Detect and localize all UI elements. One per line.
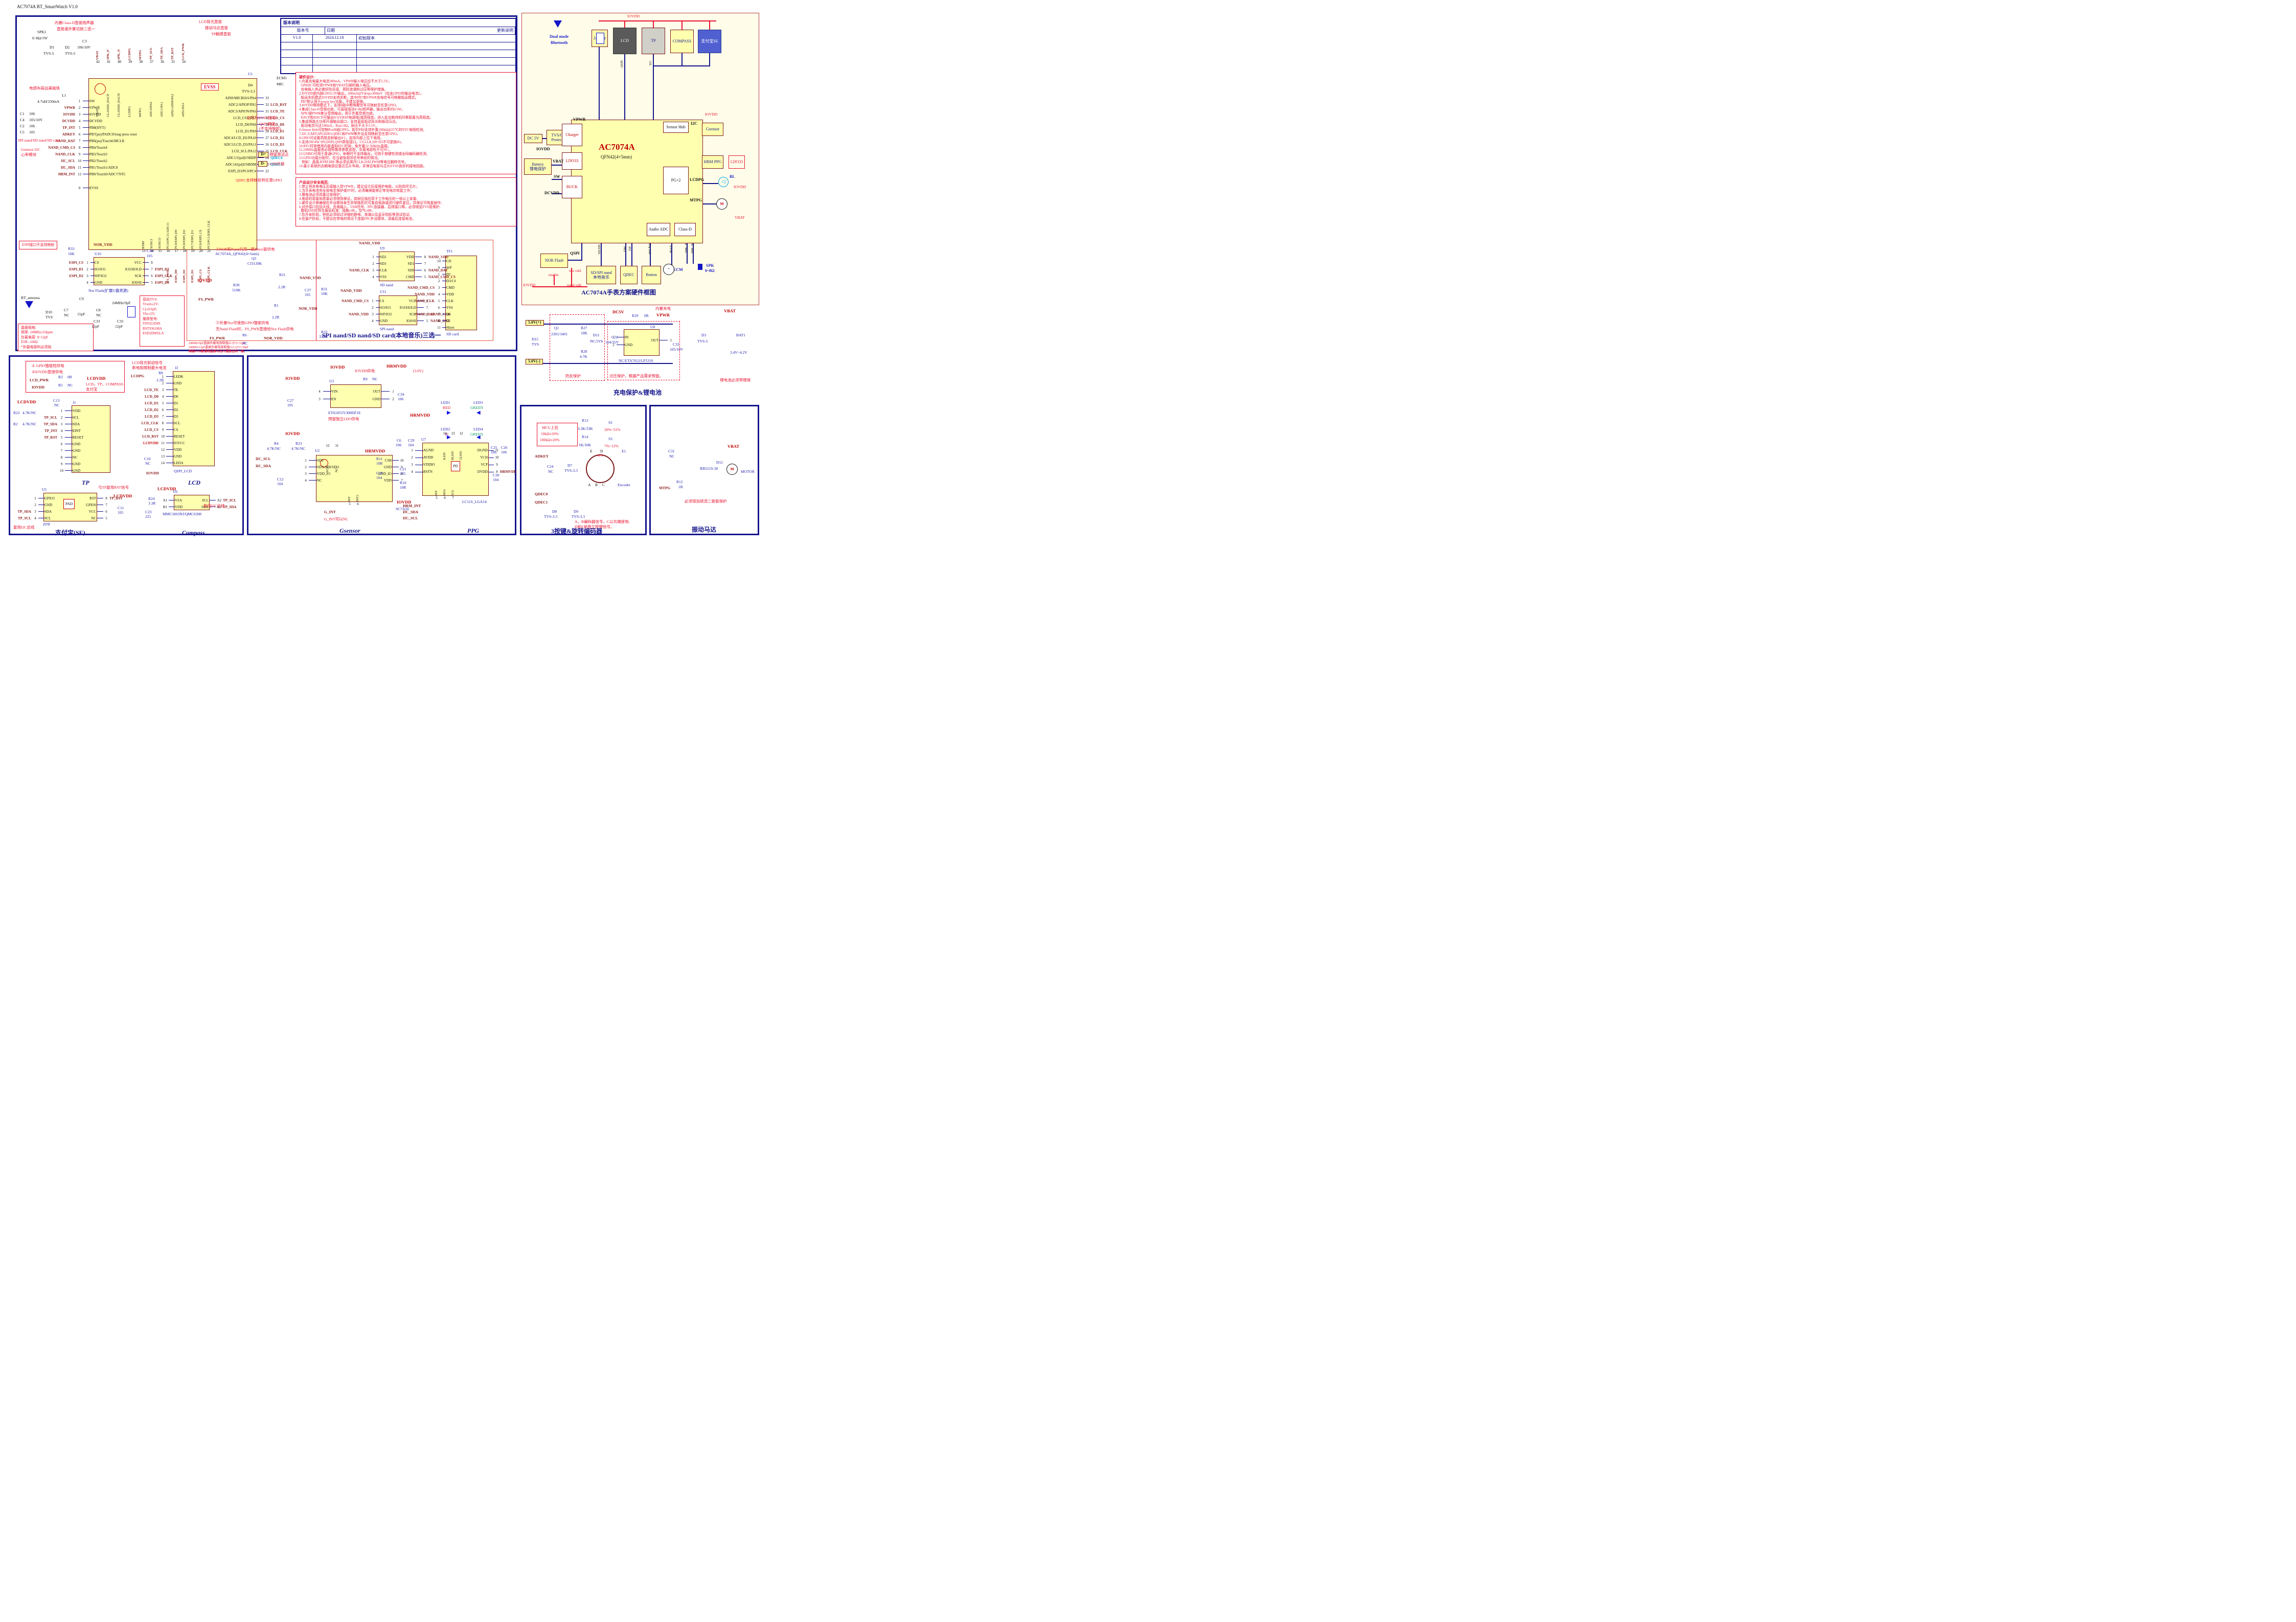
label: C33 [94,319,100,324]
pin: 8D1 [401,317,475,324]
label: TVS-3.3 [564,469,578,473]
pin: NAND_DAT7PB6(pu)/Touch6/MCLR [39,138,193,144]
label: SPK_N [691,243,694,254]
pin: 1D2 [401,271,475,278]
table-row: V1.02024.12.18初始版本 [281,35,515,42]
pin: VPWR2VPWR [39,104,193,111]
label: HRM_INT [403,504,421,508]
note-line: 频率: 24MHz±10ppm [21,330,90,335]
notes-title: 硬件设计: [299,75,513,80]
label: Gsensor [339,528,360,534]
pin: ESPI_D05IO0/SI [96,279,177,286]
label: 106/10V [77,45,90,50]
label: NC [145,462,150,466]
label: 104/35V [605,340,619,345]
tvs-note-box: 双向TVS:Vrwm≥2V;Cj≤0.6pF;Vbr≤5V;推荐型号:ST032… [140,295,185,347]
reverse-protection-box [550,314,605,381]
label: MIC [277,82,284,86]
label: ▶ [447,410,451,416]
label: IIC_SDA [256,464,271,468]
label: 104 [376,476,382,480]
pin: 13GND [128,453,220,460]
block-box: Button [642,266,661,284]
label: ① GPIO强驱档供电 [32,364,64,368]
label: D11 [593,333,600,337]
wire [599,20,716,21]
note-line: APIO是PWM差分音频输出，用于外置音频功放。 [299,112,513,116]
label: 5.0V(-) [526,359,543,364]
label: NAND_VDD [359,241,380,245]
label: U5 [42,488,47,492]
note-line: 14.最小系统的去耦电容应靠近芯片布局，并保证电容与芯片EVSS良好的接地回路。 [299,165,513,169]
bt-antenna-icon [25,301,33,308]
label: I2C [691,122,697,126]
label: 内置充电 [655,307,671,311]
label: NC [242,341,247,346]
label: 104 [277,482,283,486]
label: 3按键&旋转编码器 [551,528,602,535]
label: 105 [118,511,123,515]
label: IOVDD [523,283,535,287]
pin: PC5/PC1/ESPI_CLK21ESPI_CLK [205,211,213,283]
label: VPWR [573,118,585,122]
label: SPK [706,264,714,268]
version-table: 版本说明 版本号日期更新说明 V1.02024.12.18初始版本 [280,18,516,74]
label: IOVDD [705,112,717,117]
pin: 12VDD [128,446,220,453]
label: nor vdd [569,269,581,273]
label: NC/ETA7012/LP5310 [619,359,653,363]
label: AC7074A手表方案硬件框图 [581,289,656,296]
label: ②IOVDD直接供电 [32,370,63,374]
label: LCDPG [690,178,704,182]
label: IIC_SDA [403,510,418,514]
label: TVS [532,342,539,347]
label: VBAT [724,309,736,314]
pin: LCD_RST10RESET [128,433,220,440]
label: R28 [581,350,587,354]
label: NC/5V6 [590,339,603,344]
label: C4 [20,118,25,122]
pin: INT26 [354,487,362,508]
label: 15pF [77,312,85,316]
version-table-rows: V1.02024.12.18初始版本 [281,35,515,73]
label: PAD [63,499,75,509]
label: 24MHz/12pF晶振负载电容取值(12-3)*2=18pF [189,346,248,350]
label: M [726,464,738,475]
label: D [600,449,603,453]
label: LCD，TP，COMPASS [86,382,123,386]
label: CJ3139K [247,262,262,266]
label: 10K [68,252,75,256]
pin: PC7/ESPI_D119ESPI_D1 [189,211,197,283]
block-box: TP [642,28,665,54]
block-box: Sensor Hub [663,122,689,133]
wire [653,20,654,28]
pin: LCD_D04D0 [128,393,220,400]
wire [653,65,710,66]
label: A [588,483,590,487]
label: R4 [274,442,279,446]
table-row [281,42,515,50]
pin: NAND_CLK9PB3/Touch3 [39,151,193,157]
label: 106 [396,443,401,447]
label: LED3 [473,401,483,405]
block-box: Audio ADC [647,223,670,236]
label: R6 [242,333,247,337]
label: 1R [678,485,683,489]
label: LCD背光直驱 [199,20,222,24]
label: D4 [248,83,253,87]
wire [653,54,654,120]
label: AC7074A [599,142,635,152]
product-safety-notes: 产品设计安全规范: 1.禁止将充电电压反接输入到VPWR，建议设计反接保护电路，… [295,177,516,226]
block-box: LDO33 [729,155,745,169]
version-table-header: 版本号日期更新说明 [281,27,515,35]
note-line: 3.锂电池必须具备过放保护； [299,193,513,197]
label: 105 [287,403,293,407]
page-title: AC7074A BT_SmartWatch V1.0 [17,4,78,9]
label: D1 [50,45,54,50]
label: R23 [295,442,302,446]
label: QDEC支持映射到任意GPIO [236,178,282,182]
label: 防反保护 [565,374,581,378]
label: TF1 [446,249,453,254]
u1-left-pins: 1SWVPWR2VPWRIOVDD3IOVDDDCVDD4DCVDDTP_INT… [39,98,193,191]
wire [624,54,625,120]
label: NAND_VDD [340,289,362,293]
label: 两层PCB板请将晶振与芯片摆放在同一层。 [189,350,247,354]
label: 锂电池必须带锂保 [720,378,751,382]
charging-section: 1IN2GND 3OUT 5.0V(+)5.0V(-)D15TVS防反保护Q12… [521,307,759,404]
label: HRMVDD [410,413,430,418]
label: U3 [329,379,334,383]
note-line: 6.Sensor Hub可控制PortB组GPIO，其中PB0支持外置100kΩ… [299,128,513,132]
label: ◀ [476,410,481,416]
label: 2301/3401 [551,332,567,336]
pin: IOVDD3IOVDD [39,111,193,118]
label: MCU上拉 [542,426,558,430]
pin: SDA6 [441,481,449,502]
keys-encoder-section: MCU上拉10kΩ±20%100kΩ±20%R133.3K/33KS220%~3… [520,405,647,535]
label: 串电阻限制最大电流 [132,366,167,370]
label: NC [372,377,377,381]
wire [681,20,683,30]
note-line: 8.在量产阶段，不建议在带电的情况下连接FPC外设模块，请最后连接电池。 [299,217,513,221]
pin: 2GND [128,380,220,386]
label: 106 [491,450,496,454]
note-line: Vbr≤5V; [143,312,181,316]
pin: 5NC [47,515,130,521]
label: SD card [446,332,459,336]
label: IOVDD [197,278,212,283]
pin: LCD_D227ADC4/LCD_D2/PA10 [201,134,293,141]
note-line: 5.集成两路大功率开漏输出接口，支持直接驱动背光和振动马达。 [299,120,513,124]
label: PD [451,461,460,471]
pin: TP_RST5RESET [30,434,117,441]
label: LC11S_LGA14 [462,500,487,504]
pin: 10VCH [425,454,517,461]
note-line: 8.GPIO可设置高阻态和输出0/1，支持内部上拉下电阻。 [299,136,513,141]
label: 105 [147,254,152,258]
label: LED2 [441,427,450,431]
label: TVS-3.3 [572,515,585,519]
label: C22 [611,335,618,339]
label: D15 [532,337,538,341]
note-line: 负载电容: 8~12pF [21,335,90,340]
label: G_INT [324,510,336,514]
pin: 9GND [30,461,117,467]
label: LCD [188,479,200,486]
label: MTPG [659,486,671,490]
label: 510K [232,288,241,292]
label: RB521S-30 [700,467,718,471]
label: Nor Flash(扩展U盘资源) [88,289,128,293]
label: 0R [67,375,72,379]
label: R2 [13,422,18,426]
label: IOVDD [146,471,159,475]
label: TVS-3.3 [242,89,255,94]
pin: 14LEDA [128,460,220,466]
label: 105/10V [670,348,683,352]
pin: 22ESPI_D3/PC0/PC4 [201,168,293,174]
label: TP触摸直驱 [211,32,231,36]
note-line: 推荐型号: [143,317,181,322]
pin: TP_SCLA2SCL [177,497,243,504]
label: 充电保护&锂电池 [613,390,662,396]
crystal-icon [127,306,135,317]
pin: TP_SDA3SDA [30,421,117,427]
pin: LCD_CS9CS [128,426,220,433]
pin: 9VCP [425,461,517,468]
j1-pins: 1VDDTP_SCL2SCLTP_SDA3SDATP_INT4EINTTP_RS… [30,407,117,474]
note-line: *负载电容料必须贴 [21,345,90,350]
label: 106 [29,112,35,116]
label: 无Nand Flash时，FS_PWR直接给Nor Flash供电 [216,327,294,331]
header-cell: 日期 [325,27,495,34]
label: D3 [701,333,706,337]
label: E [590,449,593,453]
tp-lcd-section: ① GPIO强驱档供电②IOVDD直接供电LCD_PWRR30RLCDVDDLC… [9,355,244,535]
note-line: 5.硬件设计需确保在外设模块发生异常跑死时可重启电源或进行硬件复位，并保证可恢复… [299,201,513,205]
wire [542,138,547,139]
label: 直驱或外置功放二选一 [57,27,95,31]
label: LCD_PWR [30,378,49,382]
label: 4.7K/NC [267,447,281,451]
u3-right-pins: 1OUT2GND [333,387,417,403]
pin: INT5 [433,481,441,502]
block-box: LDO33 [562,152,582,170]
gsensor-ppg-section: IOVDDIOVDDIOVDD供电HRMVDD(3.0V)R9NCU3C2710… [247,355,516,535]
label: Gsensor I2C [21,148,40,152]
label: C8 [96,308,101,312]
label: LCDPG [131,374,144,378]
wire [709,53,710,66]
label: NOR_VDD [264,336,283,340]
label: VBAT [728,444,739,449]
main-sheet: 内置Class-D直驱扬声器直驱或外置功放二选一SPK16~8Ω/1WD1TVS… [15,15,517,351]
label: E1 [622,449,626,453]
label: QDEC1 [535,500,548,505]
label: U6 [173,490,177,494]
pin: 2GND [333,395,417,403]
label: MTPG [690,198,702,203]
label: 106 [29,124,35,128]
block-box: BUCK [562,176,582,198]
label: Q3 [252,257,256,261]
label: G_INT可以NC [324,517,348,521]
label: C35 [117,319,124,324]
label: IIC_SCL [403,516,418,520]
pin: 6GND [30,441,117,447]
label: 10R [376,462,383,466]
pin: LCD_RST32ADC2/APIOP/PA5 [201,101,293,108]
label: 12pF [92,325,99,329]
pin: 8VCC [96,259,177,266]
block-box: 支付宝SE [698,30,721,53]
note-line: 双向TVS: [143,298,181,302]
label: 10K [581,331,587,335]
pin: TP_INT5PB8(HVT) [39,124,193,131]
u7-bottom-pins: INT5SDA6SCL7 [433,481,459,502]
label: QSPI_LCD [174,469,192,473]
tf1-left-pins: 10CD9WP1D22D3/CSNAND_CMD_CS3CMDNAND_VDD4… [401,258,475,331]
label: L1 [62,94,66,98]
label: DC5V [612,310,624,315]
label: BIAS [669,245,673,253]
label: TP [82,479,89,486]
label: 振动马达 [692,527,716,533]
label: 106 [501,450,507,454]
label: 20%~31% [604,428,621,432]
label: TVS-3.3 [544,515,557,519]
wire [568,260,582,261]
label: LCDVDD [17,400,36,405]
label: ①NOR和Nand共用一路Pmos管供电 [216,247,275,252]
label: D9 [574,510,578,514]
label: U7 [421,438,426,442]
label: ▶ [447,435,451,440]
label: 10K [321,292,328,296]
label: EVSS [201,83,219,90]
label: R9 [363,377,368,381]
note-line: 例如：晶振,BTRF,MIC等必须远离开CLK,DAT,PWM等电压翻转信号。 [299,161,513,165]
label: C38 [147,249,153,253]
label: D7 [567,464,572,468]
label: 225 [145,515,151,519]
label: 24MHz/9pF晶振负载电容取值(9-3)*2=12pF [189,342,245,346]
label: D- [258,161,267,167]
label: D10 [46,310,52,314]
label: R29 [632,314,639,318]
label: <2% [596,453,603,458]
wire [624,20,625,28]
label: 7%~12% [604,444,619,448]
label: BL [730,175,735,179]
label: 复用I2C总线 [13,526,34,530]
label: C31 [668,449,675,453]
version-table-title: 版本说明 [281,19,515,27]
label: IIC_SCL [256,457,271,461]
note-line: ESR: ≤60Ω [21,340,90,345]
pin: NAND_CMD_CS8PB4/Touch4 [39,144,193,151]
label: 5.0V(+) [526,320,544,326]
pin: HRMVDD8DVDD [425,468,517,475]
table-row [281,58,515,65]
note-line: Cj≤0.6pF; [143,307,181,312]
pin: 1OUT [333,387,417,395]
label: IOVDD [734,185,746,189]
label: 24MHz/9pF [112,301,131,305]
rotary-encoder-icon [586,454,615,483]
label: SPK1 [37,30,47,34]
label: D2 [65,45,70,50]
pin: 10CD [401,258,475,264]
note-line: 7.I2C,UART,SPI,SDIO,QDEC和PWM等外设支持映射至任意GP… [299,132,513,136]
note-line: ST0321D4S [143,322,181,326]
pin: PC8/ESPI_D218ESPI_D2 [180,211,189,283]
label: C3 [82,39,87,43]
pin: LCD_D15D1 [128,400,220,406]
pin: 11Sheet [401,324,475,331]
note-line: 9.支持3W/4W SPI,DSPI,QSPI屏驱接口。CS,CLK,D0~D3… [299,141,513,145]
label: ETA5055V300DF1E [328,411,361,415]
label: R12 [676,480,683,484]
pin: 10GND [30,467,117,474]
pin: 0EVSS [39,185,193,191]
label: HRMVDD [387,364,406,369]
label: DM [623,246,627,252]
label: 2.2R [156,378,164,382]
label: BT_antenna [21,296,40,300]
label: Bluetooth [551,41,567,45]
label: nand vdd [567,283,581,287]
pin: ESPI_CLK6SCK [96,272,177,279]
label: 6~8Ω [705,269,715,273]
label: C [602,483,605,487]
label: DP [628,246,632,250]
label: enable [549,273,559,277]
label: 104 [493,478,498,482]
label: TVS [46,315,53,319]
label: LCD背光驱动信号 [132,361,163,365]
label: 10R [400,486,406,490]
label: C24 [547,465,554,469]
note-line: 充电输入务必做好防反接、预防浪涌和过压等保护措施。 [299,88,513,92]
hardware-design-notes: 硬件设计: 1.内置充电最大电流300mA，VPWR输入电压应不大于5.5V。 … [295,72,516,174]
pin: NAND_CMD_CS3CMD [401,284,475,291]
label: (不支持映射) [259,127,281,131]
pin: 1SW [39,98,193,104]
note-line: 1.内置充电最大电流300mA，VPWR输入电压应不大于5.5V。 [299,80,513,84]
label: ZFB [43,522,50,527]
label: SPI nand/SD nand/SD card [18,139,60,143]
label: C5 [20,130,25,134]
label: QSPI [570,252,580,256]
label: MMC5603NJ/QMC6308 [163,512,201,516]
label: R21 [279,273,286,277]
label: IOVDD [536,147,550,152]
table-row [281,50,515,58]
label: FS_PWR [198,298,214,302]
pin: 6VSS [401,304,475,311]
label: 振动马达直驱 [205,26,228,30]
header-cell: 版本号 [281,27,325,34]
label: C2 [20,124,25,128]
label: SPI nand [380,327,394,331]
label: SPK_P [685,243,688,253]
label: ECM [673,268,683,272]
